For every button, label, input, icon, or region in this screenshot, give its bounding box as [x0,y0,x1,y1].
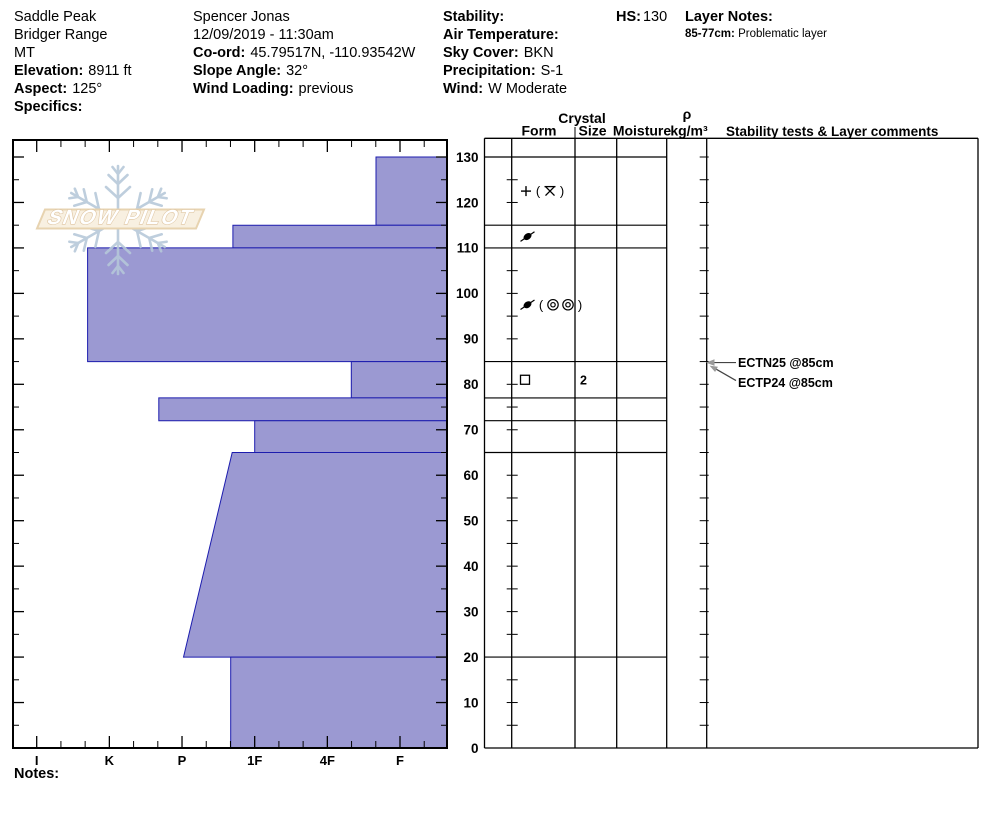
depth-axis-label: 0 [471,741,479,756]
depth-axis-label: 40 [463,559,478,574]
hardness-axis-label: 1F [247,753,262,768]
depth-axis-label: 90 [463,332,478,347]
hardness-axis-label: P [178,753,187,768]
notes-label: Notes: [14,766,59,782]
grain-form-row: () [521,297,583,312]
stability-tests-header: Stability tests & Layer comments [726,124,938,139]
depth-axis-label: 30 [463,604,478,619]
svg-text:(: ( [536,184,541,199]
hardness-axis-label: F [396,753,404,768]
stability-test-label: ECTN25 @85cm [738,356,834,370]
grain-size-value: 2 [580,373,587,387]
grain-form-row: 2 [521,373,588,387]
density-symbol-header: ρ [683,106,692,122]
snow-layer-bar [159,398,447,421]
grain-form-row [521,232,535,242]
grain-form-row: () [521,184,564,199]
form-header: Form [522,123,557,139]
moisture-header: Moisture [613,123,672,139]
snow-profile-graph: SNOW PILOT IKP1F4FF010203040506070809010… [0,0,994,840]
logo-text: SNOW PILOT [44,206,198,229]
hardness-axis-label: 4F [320,753,335,768]
table-headers: Crystal Form Size Moisture ρ kg/m³ Stabi… [522,106,939,139]
snow-layer-bar [184,453,448,658]
stability-test-annotations: ECTN25 @85cmECTP24 @85cm [706,356,834,390]
grain-form-symbols: ()()2 [521,184,588,388]
depth-axis-label: 80 [463,377,478,392]
depth-axis-label: 120 [456,195,479,210]
depth-axis-label: 60 [463,468,478,483]
snow-layer-bar [376,157,447,225]
depth-axis-label: 50 [463,513,478,528]
snow-layer-bar [351,362,447,398]
snow-layer-bar [88,248,447,362]
snow-layer-bar [231,657,447,748]
snowpilot-profile-page: Saddle Peak Bridger Range MT Elevation:8… [0,0,994,840]
hardness-axis-label: K [105,753,115,768]
depth-axis-label: 130 [456,150,479,165]
svg-text:(: ( [539,297,544,312]
depth-axis-label: 70 [463,423,478,438]
stability-test-label: ECTP24 @85cm [738,376,833,390]
snow-layer-bar [233,225,447,248]
svg-text:): ) [578,297,582,312]
layer-data-table [485,127,979,748]
depth-axis-label: 20 [463,650,478,665]
depth-axis-label: 10 [463,695,478,710]
size-header: Size [578,123,606,139]
test-arrow-icon [710,366,718,372]
svg-text:): ) [560,184,564,199]
density-units-header: kg/m³ [670,123,708,139]
depth-axis-label: 100 [456,286,479,301]
snow-layer-bar [255,421,447,453]
depth-axis-label: 110 [457,241,479,256]
